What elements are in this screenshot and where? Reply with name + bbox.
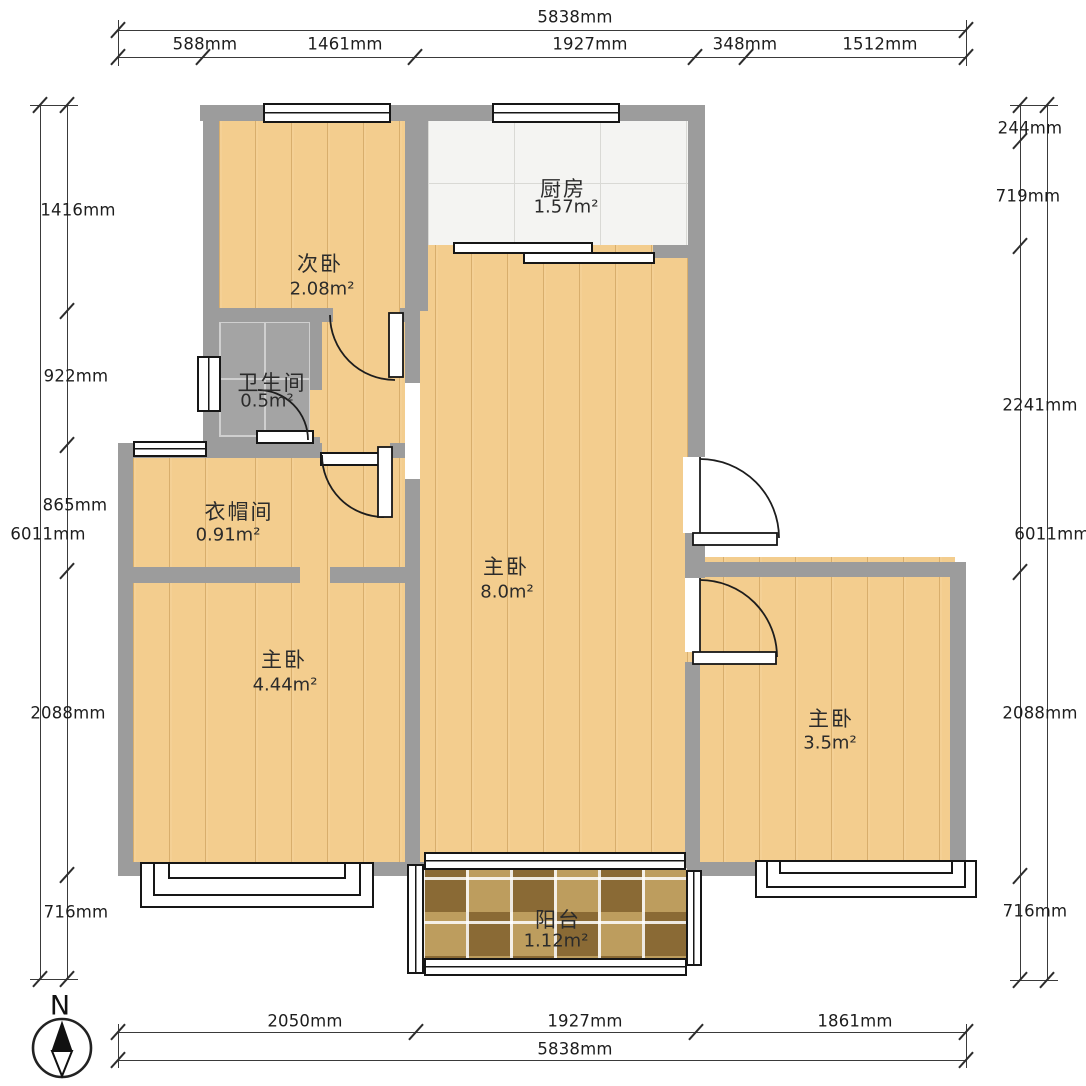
- dim-left-seg-3: 2088mm: [30, 704, 105, 723]
- dim-top-seg-0: 588mm: [173, 35, 238, 54]
- dim-line-bottom-segments: [118, 1032, 966, 1033]
- door-arc-entry: [700, 459, 779, 538]
- door-leaf-cloakroom: [378, 447, 392, 517]
- room-area-kitchen: 1.57m²: [534, 197, 599, 218]
- room-area-cloakroom: 0.91m²: [196, 525, 261, 546]
- dim-left-seg-0: 1416mm: [40, 201, 115, 220]
- dim-bottom-total: 5838mm: [537, 1040, 612, 1059]
- dim-top-seg-1: 1461mm: [307, 35, 382, 54]
- dim-right-seg-0: 244mm: [998, 119, 1063, 138]
- dim-top-seg-2: 1927mm: [552, 35, 627, 54]
- room-label-balcony: 阳台: [535, 904, 581, 934]
- room-area-master-center: 8.0m²: [480, 582, 533, 603]
- dim-top-total: 5838mm: [537, 8, 612, 27]
- door-arc-secondary-bedroom: [330, 315, 395, 380]
- dim-line-top-segments: [118, 57, 966, 58]
- dim-left-seg-2: 865mm: [43, 496, 108, 515]
- room-area-secondary-bedroom: 2.08m²: [290, 279, 355, 300]
- room-area-master-right: 3.5m²: [803, 733, 856, 754]
- room-label-master-left: 主卧: [261, 644, 307, 674]
- dim-right-seg-4: 716mm: [1003, 902, 1068, 921]
- dim-right-seg-2: 2241mm: [1002, 396, 1077, 415]
- floor-plan-canvas: 次卧 2.08m² 厨房 1.57m² 卫生间 0.5m² 衣帽间 0.91m²…: [0, 0, 1086, 1086]
- dim-right-total: 6011mm: [1014, 525, 1086, 544]
- door-arc-master-right: [700, 580, 777, 657]
- dim-top-seg-4: 1512mm: [842, 35, 917, 54]
- dim-bottom-seg-1: 1927mm: [547, 1012, 622, 1031]
- dim-line-top-total: [118, 30, 966, 31]
- dim-bottom-seg-2: 1861mm: [817, 1012, 892, 1031]
- dim-line-bottom-total: [118, 1060, 966, 1061]
- dim-right-seg-1: 719mm: [996, 187, 1061, 206]
- dim-bottom-seg-0: 2050mm: [267, 1012, 342, 1031]
- room-area-balcony: 1.12m²: [524, 931, 589, 952]
- door-leaf-master-right: [693, 652, 776, 664]
- room-label-master-right: 主卧: [808, 703, 854, 733]
- dim-left-seg-1: 922mm: [44, 367, 109, 386]
- compass-icon: [0, 990, 120, 1086]
- door-leaf-secondary-bedroom: [389, 313, 403, 377]
- door-arc-cloakroom: [322, 455, 384, 517]
- dim-left-seg-4: 716mm: [44, 903, 109, 922]
- room-label-secondary-bedroom: 次卧: [297, 248, 343, 278]
- dim-right-seg-3: 2088mm: [1002, 704, 1077, 723]
- room-area-bathroom: 0.5m²: [240, 391, 293, 412]
- room-label-master-center: 主卧: [483, 551, 529, 581]
- room-area-master-left: 4.44m²: [253, 675, 318, 696]
- door-leaf-entry: [693, 533, 777, 545]
- dim-top-seg-3: 348mm: [713, 35, 778, 54]
- room-label-cloakroom: 衣帽间: [205, 496, 274, 526]
- dim-left-total: 6011mm: [10, 525, 85, 544]
